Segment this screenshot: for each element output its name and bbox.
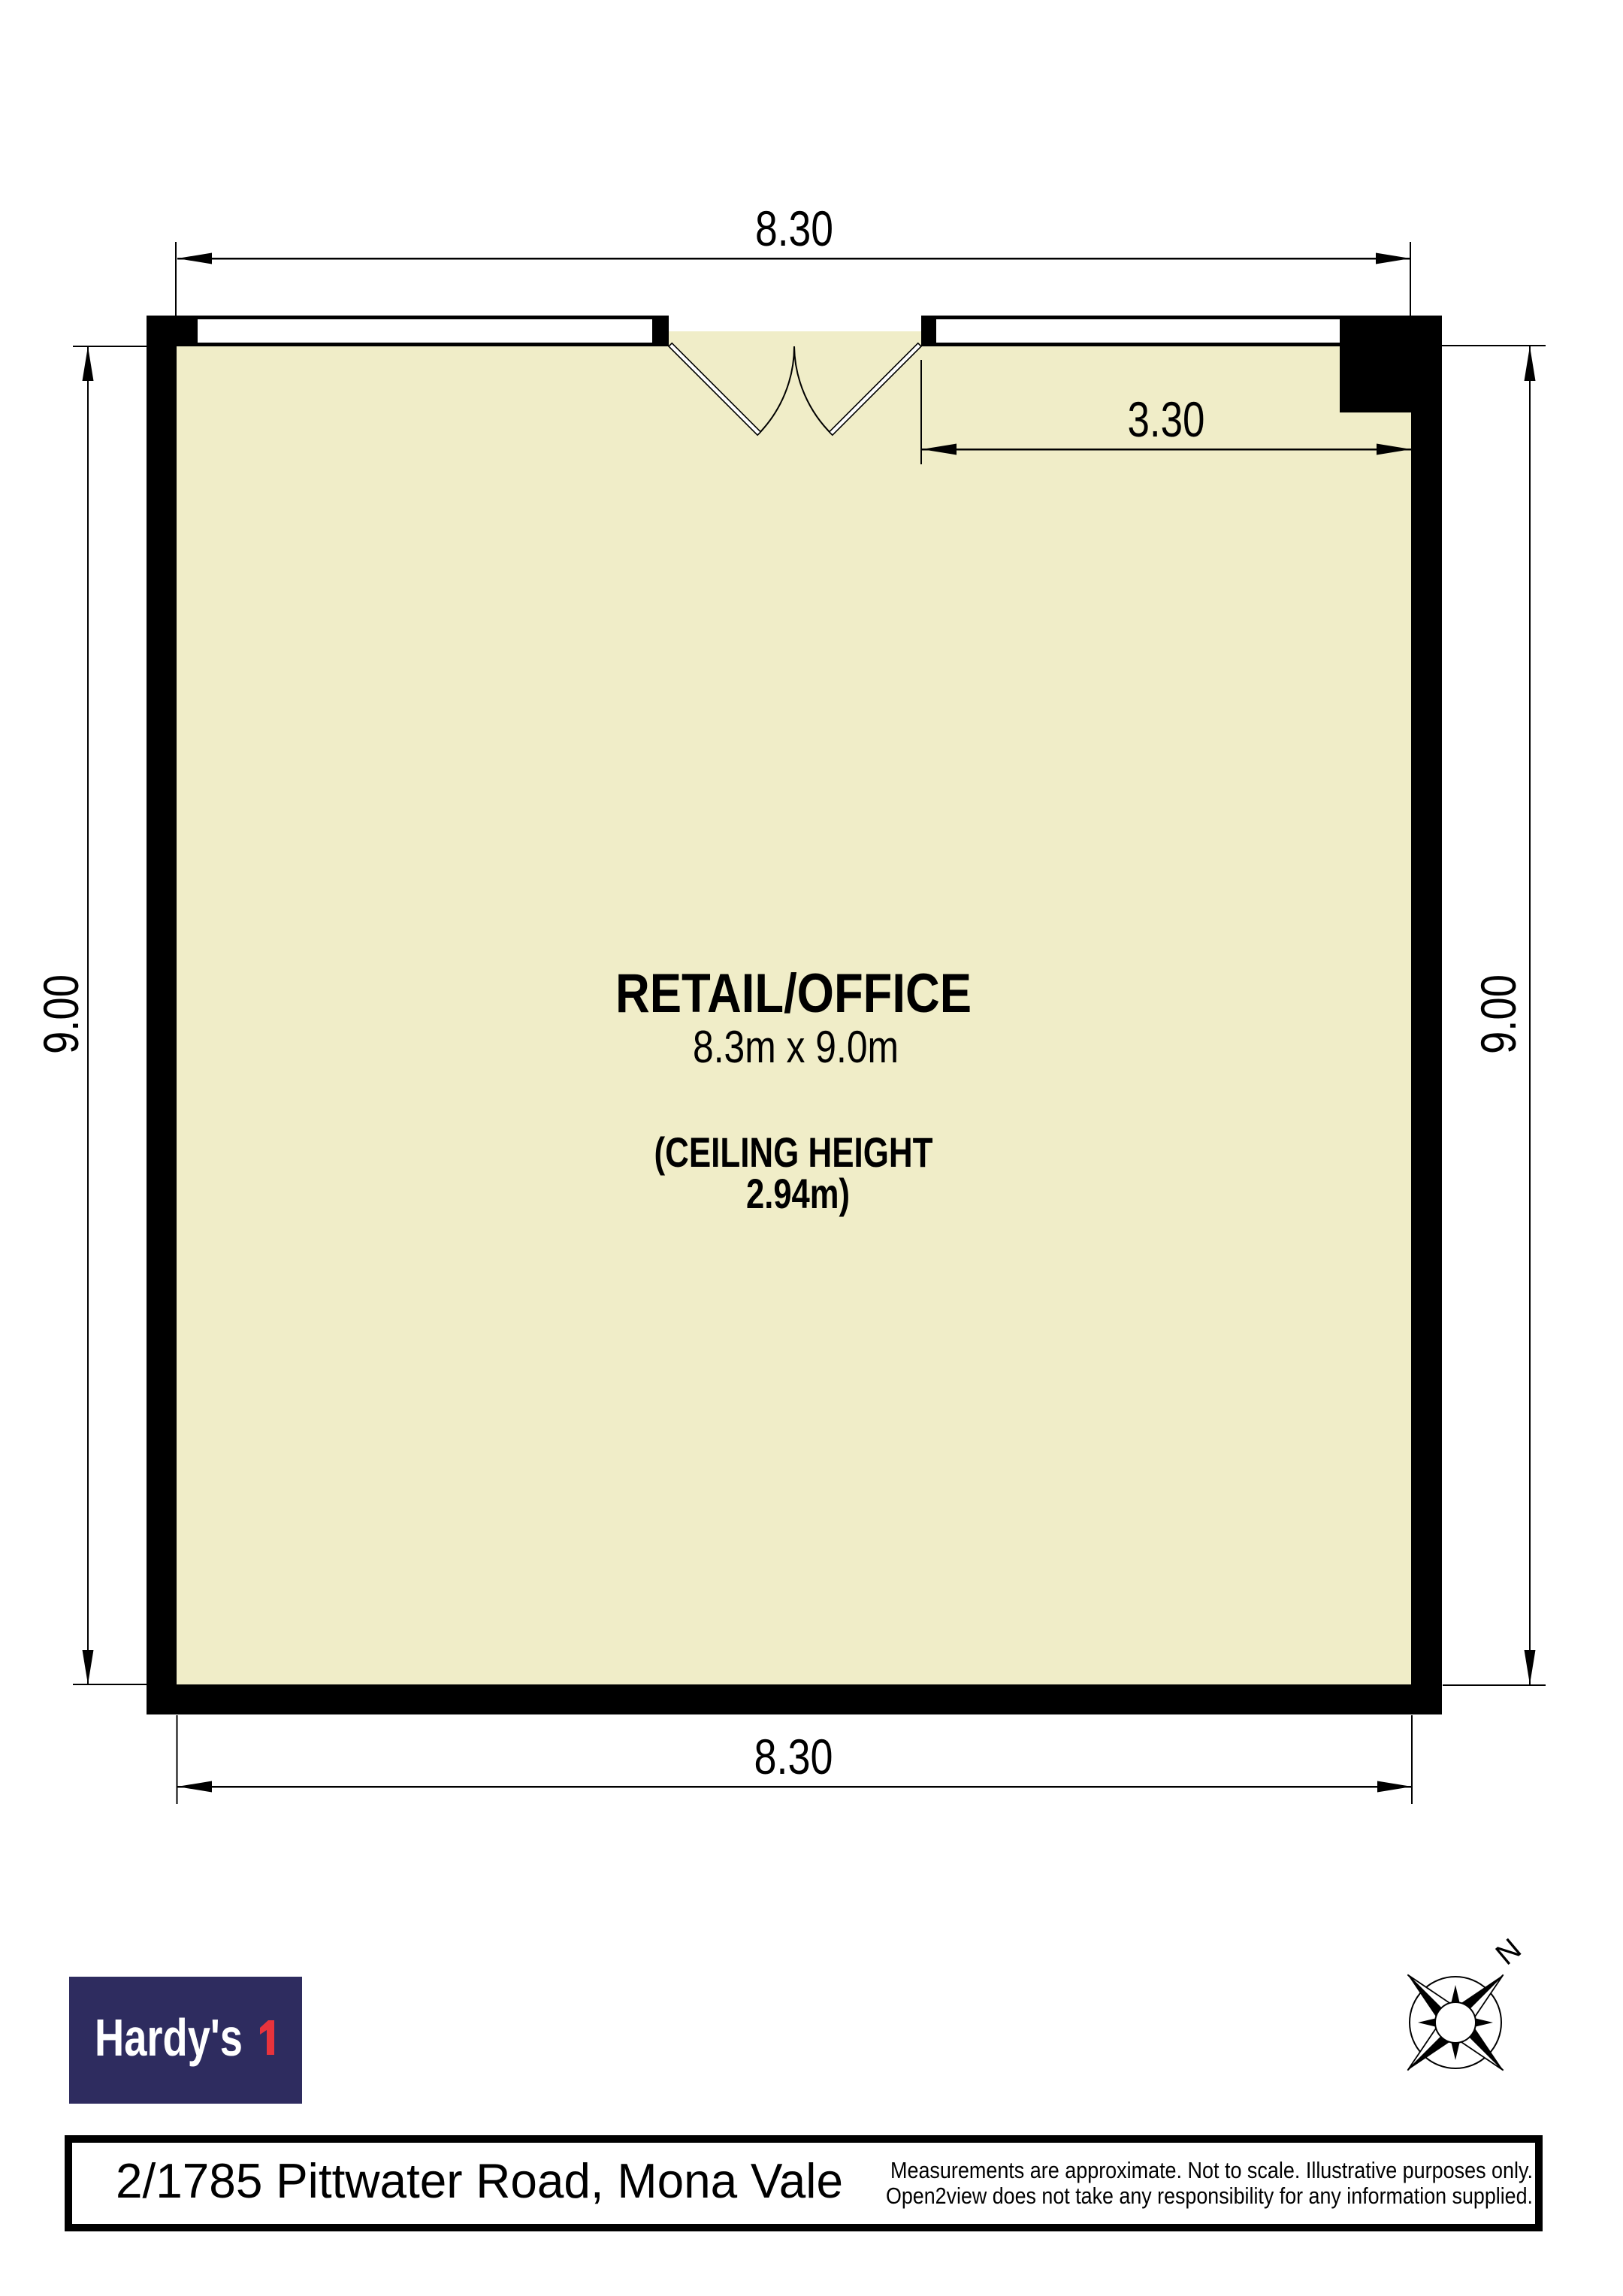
svg-text:(CEILING HEIGHT: (CEILING HEIGHT <box>654 1128 933 1176</box>
svg-text:8.30: 8.30 <box>754 1729 833 1784</box>
svg-text:Open2view does not take any re: Open2view does not take any responsibili… <box>886 2183 1533 2209</box>
svg-text:3.30: 3.30 <box>1128 391 1205 447</box>
svg-text:Measurements are approximate.: Measurements are approximate. Not to sca… <box>890 2157 1533 2183</box>
svg-text:Hardy's: Hardy's <box>95 2008 243 2067</box>
svg-text:8.30: 8.30 <box>755 201 833 256</box>
svg-text:2/1785 Pittwater Road, Mona Va: 2/1785 Pittwater Road, Mona Vale <box>116 2153 843 2208</box>
svg-text:2.94m): 2.94m) <box>746 1170 850 1217</box>
svg-text:RETAIL/OFFICE: RETAIL/OFFICE <box>615 963 972 1024</box>
svg-text:9.00: 9.00 <box>33 974 89 1054</box>
svg-text:8.3m x 9.0m: 8.3m x 9.0m <box>693 1022 899 1072</box>
svg-text:9.00: 9.00 <box>1470 974 1526 1054</box>
